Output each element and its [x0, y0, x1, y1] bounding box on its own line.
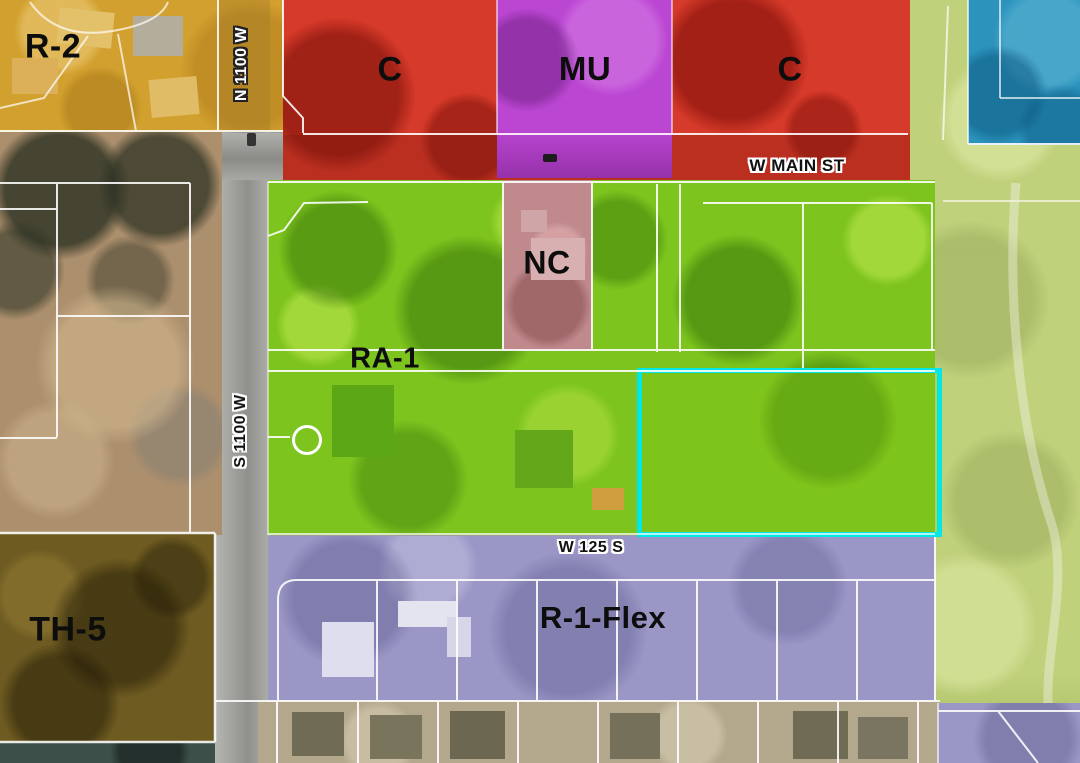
street-label-s-1100-w: S 1100 W — [232, 394, 250, 467]
car — [543, 154, 557, 162]
zoning-map[interactable]: R-2 C MU C NC RA-1 TH-5 R-1-Flex N 1100 … — [0, 0, 1080, 763]
driveway-circle — [292, 425, 322, 455]
street-label-w-main-st: W MAIN ST — [749, 156, 844, 176]
rooftop — [450, 711, 505, 759]
selected-parcel-highlight[interactable] — [637, 368, 942, 537]
rooftop — [292, 712, 344, 756]
building — [521, 210, 547, 232]
rooftop — [793, 711, 848, 759]
building — [133, 16, 183, 56]
zone-label-nc: NC — [523, 245, 570, 282]
rooftop — [610, 713, 660, 759]
zone-blue-parcel[interactable] — [968, 0, 1080, 145]
building — [332, 385, 394, 457]
car — [247, 133, 256, 146]
building — [447, 617, 471, 657]
rooftop — [858, 717, 908, 759]
zone-label-th5: TH-5 — [29, 611, 107, 650]
building — [148, 76, 199, 118]
aerial-trees-south — [0, 742, 215, 763]
zone-label-c-west: C — [377, 51, 402, 90]
zone-label-ra1: RA-1 — [350, 343, 420, 376]
building — [322, 622, 374, 677]
zone-r1-flex-southeast[interactable] — [938, 703, 1080, 763]
zone-label-c-east: C — [777, 51, 802, 90]
street-label-w-125-s: W 125 S — [559, 539, 624, 557]
building — [592, 488, 624, 510]
building — [515, 430, 573, 488]
zone-label-mu: MU — [559, 50, 611, 88]
aerial-unzoned-parcels — [0, 130, 222, 535]
zone-label-r1flex: R-1-Flex — [540, 600, 666, 636]
rooftop — [370, 715, 422, 759]
zone-label-r2: R-2 — [25, 28, 81, 67]
zone-mu[interactable] — [497, 0, 672, 178]
street-label-n-1100-w: N 1100 W — [233, 27, 251, 101]
